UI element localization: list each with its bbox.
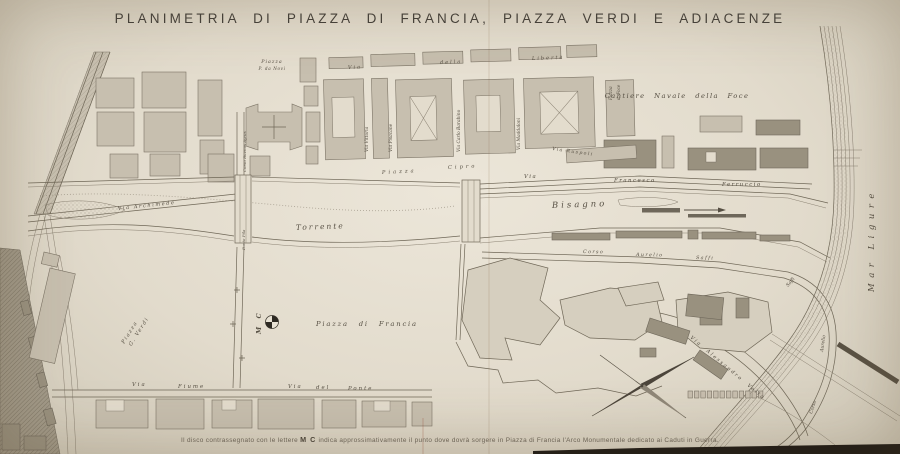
label-mar-ligure: Mar Ligure: [867, 188, 877, 293]
label-corso-saffi-1: Corso: [583, 249, 604, 255]
label-piazza-cipro-1: Piazza: [381, 168, 417, 176]
church-building: [246, 104, 302, 150]
map-caption: Il disco contrassegnato con le lettere M…: [0, 435, 900, 444]
map-title: PLANIMETRIA DI PIAZZA DI FRANCIA, PIAZZA…: [0, 11, 900, 26]
mc-disc-marker: [266, 316, 279, 329]
label-piazza-novi-1: Piazza: [260, 59, 283, 65]
label-via-ponte-2: del: [316, 385, 330, 391]
label-via-archimede: Via Archimede: [118, 200, 176, 212]
label-corso-buenos-ayres: Corso Buenos Ayres: [242, 131, 247, 172]
caption-pre: Il disco contrassegnato con le lettere: [181, 437, 298, 444]
label-saffi-curve-2: Aurelio: [819, 334, 827, 353]
label-cantiere-navale: Cantiere Navale della Foce: [605, 92, 750, 100]
label-via-fiume-1: Via: [132, 382, 147, 388]
label-piazza-verdi: Piazza G. Verdi: [120, 312, 151, 350]
label-torrente: Torrente: [296, 221, 345, 232]
railway-southwest: [0, 248, 75, 454]
label-via-liberta-3: Libertà: [531, 54, 565, 62]
scanned-map-page: PLANIMETRIA DI PIAZZA DI FRANCIA, PIAZZA…: [0, 0, 900, 454]
label-via-vittoria: Via Vittoria: [365, 126, 370, 152]
label-via-ponte-3: Ponte: [347, 386, 373, 392]
label-piazza-francia: Piazza di Francia: [315, 320, 418, 328]
label-via-barabino: Via Carlo Barabino: [457, 109, 462, 152]
label-piazza-novi-2: P. da Novi: [257, 66, 285, 71]
label-via-fiume-2: Fiume: [177, 384, 205, 390]
label-mc-mark: M C: [255, 310, 263, 335]
label-via-ponte-1: Via: [288, 384, 303, 390]
compass-rose: [592, 355, 694, 418]
label-corso-saffi-3: Saffi: [696, 255, 714, 262]
label-via-maddaloni: Via Maddaloni: [517, 117, 522, 150]
label-via-liberta-2: della: [440, 59, 463, 66]
label-ponte-pila: Ponte Pila: [241, 229, 246, 251]
label-via-ferruccio-3: Ferruccio: [721, 182, 762, 188]
label-bisagno: Bisagno: [551, 199, 608, 211]
fortifications: [230, 244, 772, 396]
torrente-bisagno-river: [28, 177, 830, 262]
label-via-ferruccio-1: Via: [524, 174, 537, 180]
label-via-liberta-1: Via: [348, 65, 362, 71]
bottom-buildings-row: [96, 399, 432, 429]
map-canvas: Piazza P. da Novi Via della Libertà Piaz…: [0, 0, 900, 454]
label-corso-saffi-2: Aurelio: [635, 252, 664, 258]
label-via-pisacane: Via Pisacane: [389, 123, 394, 152]
bridges: [235, 175, 480, 243]
caption-mc: M C: [300, 435, 316, 444]
caption-post: indica approssimativamente il punto dove…: [318, 437, 719, 444]
label-via-ferruccio-2: Francesco: [613, 178, 656, 184]
label-piazza-cipro-2: Cipro: [448, 163, 478, 171]
